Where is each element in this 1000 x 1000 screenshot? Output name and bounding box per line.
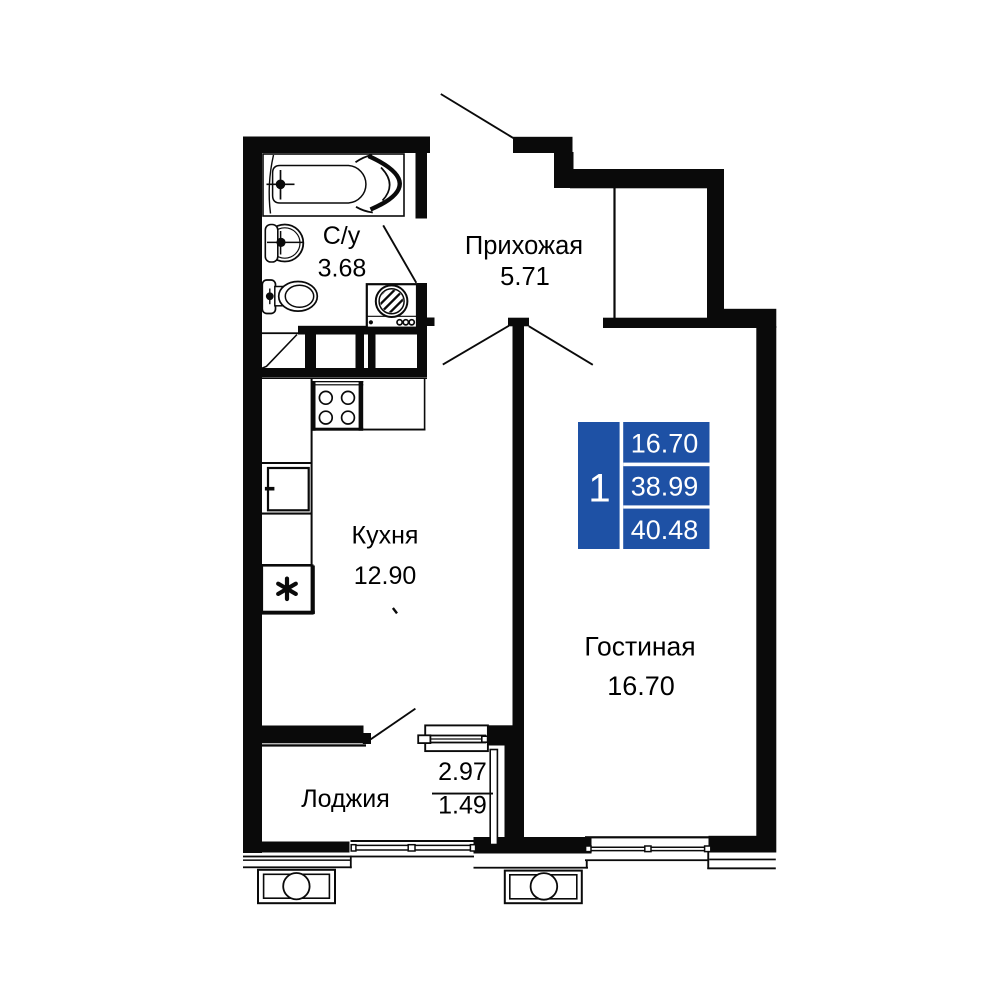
svg-text:16.70: 16.70	[607, 671, 675, 701]
svg-text:Лоджия: Лоджия	[301, 785, 390, 813]
svg-text:Прихожая: Прихожая	[465, 232, 583, 260]
svg-text:С/у: С/у	[323, 222, 361, 250]
svg-text:1.49: 1.49	[438, 792, 487, 820]
svg-text:2.97: 2.97	[438, 758, 487, 786]
svg-text:12.90: 12.90	[354, 562, 417, 590]
svg-text:16.70: 16.70	[631, 428, 699, 458]
svg-text:38.99: 38.99	[631, 472, 699, 502]
svg-text:40.48: 40.48	[631, 515, 699, 545]
svg-text:3.68: 3.68	[318, 255, 367, 283]
svg-text:Кухня: Кухня	[352, 522, 419, 550]
svg-text:1: 1	[588, 466, 610, 510]
svg-text:Гостиная: Гостиная	[584, 632, 695, 662]
svg-text:5.71: 5.71	[500, 263, 550, 291]
